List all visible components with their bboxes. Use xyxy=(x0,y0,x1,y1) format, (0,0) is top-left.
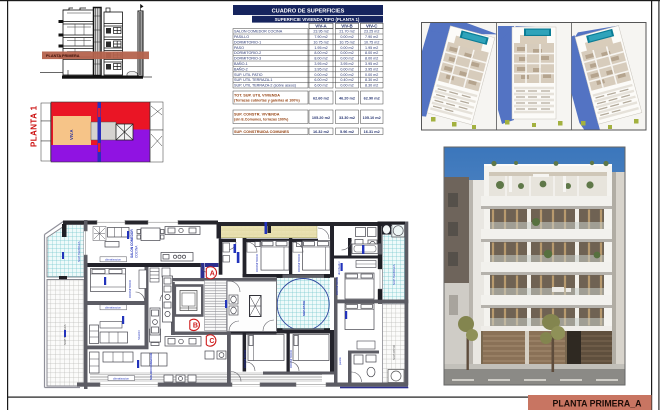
svg-text:pasillo: pasillo xyxy=(338,357,342,365)
svg-text:DORMITORIO: DORMITORIO xyxy=(128,279,132,298)
svg-text:SUP.TERRAZA: SUP.TERRAZA xyxy=(392,264,396,285)
svg-text:DORMITORIO-2: DORMITORIO-2 xyxy=(234,51,261,55)
svg-text:DORMITORIO-3: DORMITORIO-3 xyxy=(234,57,261,61)
svg-text:PASILLO: PASILLO xyxy=(234,35,249,39)
svg-text:VIV-C: VIV-C xyxy=(366,24,378,29)
svg-text:8.30 m2: 8.30 m2 xyxy=(365,84,378,88)
svg-text:TOT. SUP. UTIL VIVIENDA: TOT. SUP. UTIL VIVIENDA xyxy=(234,93,280,97)
svg-text:SUP. UTIL PATIO: SUP. UTIL PATIO xyxy=(234,73,263,77)
svg-text:0.00 m2: 0.00 m2 xyxy=(340,84,353,88)
svg-text:PLANTA PRIMERA: PLANTA PRIMERA xyxy=(46,54,80,58)
svg-text:BAÑO-2: BAÑO-2 xyxy=(234,66,248,71)
svg-text:SALON COMEDOR COCINA: SALON COMEDOR COCINA xyxy=(234,30,283,34)
svg-text:3.95 m2: 3.95 m2 xyxy=(314,67,327,71)
svg-text:8.30 m2: 8.30 m2 xyxy=(365,78,378,82)
svg-text:VIV-A: VIV-A xyxy=(315,24,327,29)
svg-text:A: A xyxy=(210,271,215,278)
svg-text:SALON COMEDOR: SALON COMEDOR xyxy=(130,229,134,258)
svg-text:105.10 m2: 105.10 m2 xyxy=(363,116,381,120)
svg-text:(Terrazas cubiertas y galerias: (Terrazas cubiertas y galerias al 100%) xyxy=(234,99,300,103)
svg-text:1.95 m2: 1.95 m2 xyxy=(365,46,378,50)
svg-text:6.00 m2: 6.00 m2 xyxy=(314,78,327,82)
svg-text:8.00 m2: 8.00 m2 xyxy=(314,51,327,55)
svg-text:10.75 m2: 10.75 m2 xyxy=(364,40,379,44)
svg-text:(sin E.Comunes, terrazas 100%): (sin E.Comunes, terrazas 100%) xyxy=(234,118,289,122)
svg-text:C: C xyxy=(209,338,214,345)
svg-text:8.00 m2: 8.00 m2 xyxy=(365,57,378,61)
svg-text:SALON: SALON xyxy=(137,331,141,340)
svg-text:21.70 m2: 21.70 m2 xyxy=(339,30,354,34)
svg-text:3.95 m2: 3.95 m2 xyxy=(365,62,378,66)
svg-text:SUP. CONSTR. VIVIENDA: SUP. CONSTR. VIVIENDA xyxy=(234,112,280,116)
svg-text:0.00 m2: 0.00 m2 xyxy=(340,73,353,77)
svg-text:3.95 m2: 3.95 m2 xyxy=(340,62,353,66)
svg-text:PASO: PASO xyxy=(234,46,244,50)
svg-text:0.00 m2: 0.00 m2 xyxy=(340,51,353,55)
svg-text:DORMITORIO: DORMITORIO xyxy=(289,349,293,368)
svg-text:23.25 m2: 23.25 m2 xyxy=(364,30,379,34)
svg-text:B: B xyxy=(193,323,198,330)
svg-text:46.20 m2: 46.20 m2 xyxy=(339,97,355,101)
svg-text:DORMITORIO: DORMITORIO xyxy=(255,253,259,272)
svg-text:DORMITORIO: DORMITORIO xyxy=(243,349,247,368)
svg-text:10.75 m2: 10.75 m2 xyxy=(339,40,354,44)
svg-text:VIV-B: VIV-B xyxy=(341,24,352,29)
svg-text:SUPERFICIE VIVIENDA TIPO (PLAN: SUPERFICIE VIVIENDA TIPO (PLANTA 1) xyxy=(275,17,360,22)
svg-text:climatizacion: climatizacion xyxy=(105,258,121,262)
svg-text:62.90 m2: 62.90 m2 xyxy=(364,97,380,101)
svg-text:62.60 m2: 62.60 m2 xyxy=(313,97,329,101)
svg-text:DORMITORIO: DORMITORIO xyxy=(335,276,339,295)
svg-text:climatizacion: climatizacion xyxy=(113,376,129,380)
svg-text:1.95 m2: 1.95 m2 xyxy=(314,46,327,50)
svg-text:16.32 m2: 16.32 m2 xyxy=(313,130,329,134)
svg-text:climatizacion: climatizacion xyxy=(105,306,121,310)
svg-text:23.95 m2: 23.95 m2 xyxy=(313,30,328,34)
svg-text:SUP.TERRAZA: SUP.TERRAZA xyxy=(77,241,81,262)
svg-text:BAÑO-1: BAÑO-1 xyxy=(234,61,248,66)
svg-text:SUP. UTIL TERRAZA-1: SUP. UTIL TERRAZA-1 xyxy=(234,78,272,82)
svg-text:distribuidor: distribuidor xyxy=(337,261,341,275)
svg-text:DORMITORIO-1: DORMITORIO-1 xyxy=(234,40,261,44)
svg-text:8.00 m2: 8.00 m2 xyxy=(365,51,378,55)
svg-text:VIV.A: VIV.A xyxy=(69,129,74,140)
svg-text:105.20 m2: 105.20 m2 xyxy=(312,116,330,120)
svg-text:SUP. CONSTRUIDA COMUNES: SUP. CONSTRUIDA COMUNES xyxy=(234,130,290,134)
svg-text:6.00 m2: 6.00 m2 xyxy=(314,84,327,88)
svg-text:0.00 m2: 0.00 m2 xyxy=(365,73,378,77)
svg-text:0.40 m2: 0.40 m2 xyxy=(340,78,353,82)
svg-text:SALON COMEDOR: SALON COMEDOR xyxy=(149,352,153,380)
svg-text:7.90 m2: 7.90 m2 xyxy=(314,35,327,39)
svg-text:SUP. UTIL TERRAZA-2 (sobre ase: SUP. UTIL TERRAZA-2 (sobre aseos) xyxy=(234,84,296,88)
svg-text:0.00 m2: 0.00 m2 xyxy=(314,73,327,77)
svg-text:0.00 m2: 0.00 m2 xyxy=(340,57,353,61)
svg-text:10.75 m2: 10.75 m2 xyxy=(313,40,328,44)
svg-text:SUP.PATIO: SUP.PATIO xyxy=(392,344,396,360)
svg-text:3.95 m2: 3.95 m2 xyxy=(365,67,378,71)
svg-text:5.96 m2: 5.96 m2 xyxy=(340,130,354,134)
svg-text:7.90 m2: 7.90 m2 xyxy=(365,35,378,39)
svg-text:3.95 m2: 3.95 m2 xyxy=(314,62,327,66)
svg-text:PLANTA PRIMERA_A: PLANTA PRIMERA_A xyxy=(553,399,643,409)
svg-text:SUP.PATIO: SUP.PATIO xyxy=(302,300,306,316)
svg-text:16.31 m2: 16.31 m2 xyxy=(364,130,380,134)
svg-text:COCINA: COCINA xyxy=(135,245,139,258)
svg-text:PLANTA 1: PLANTA 1 xyxy=(30,105,39,147)
svg-text:33.30 m2: 33.30 m2 xyxy=(339,116,355,120)
svg-text:0.00 m2: 0.00 m2 xyxy=(340,35,353,39)
svg-text:CUADRO DE SUPERFICIES: CUADRO DE SUPERFICIES xyxy=(272,8,345,14)
svg-text:DORMITORIO: DORMITORIO xyxy=(297,253,301,272)
svg-text:0.00 m2: 0.00 m2 xyxy=(340,67,353,71)
svg-text:8.00 m2: 8.00 m2 xyxy=(314,57,327,61)
svg-text:0.00 m2: 0.00 m2 xyxy=(340,46,353,50)
